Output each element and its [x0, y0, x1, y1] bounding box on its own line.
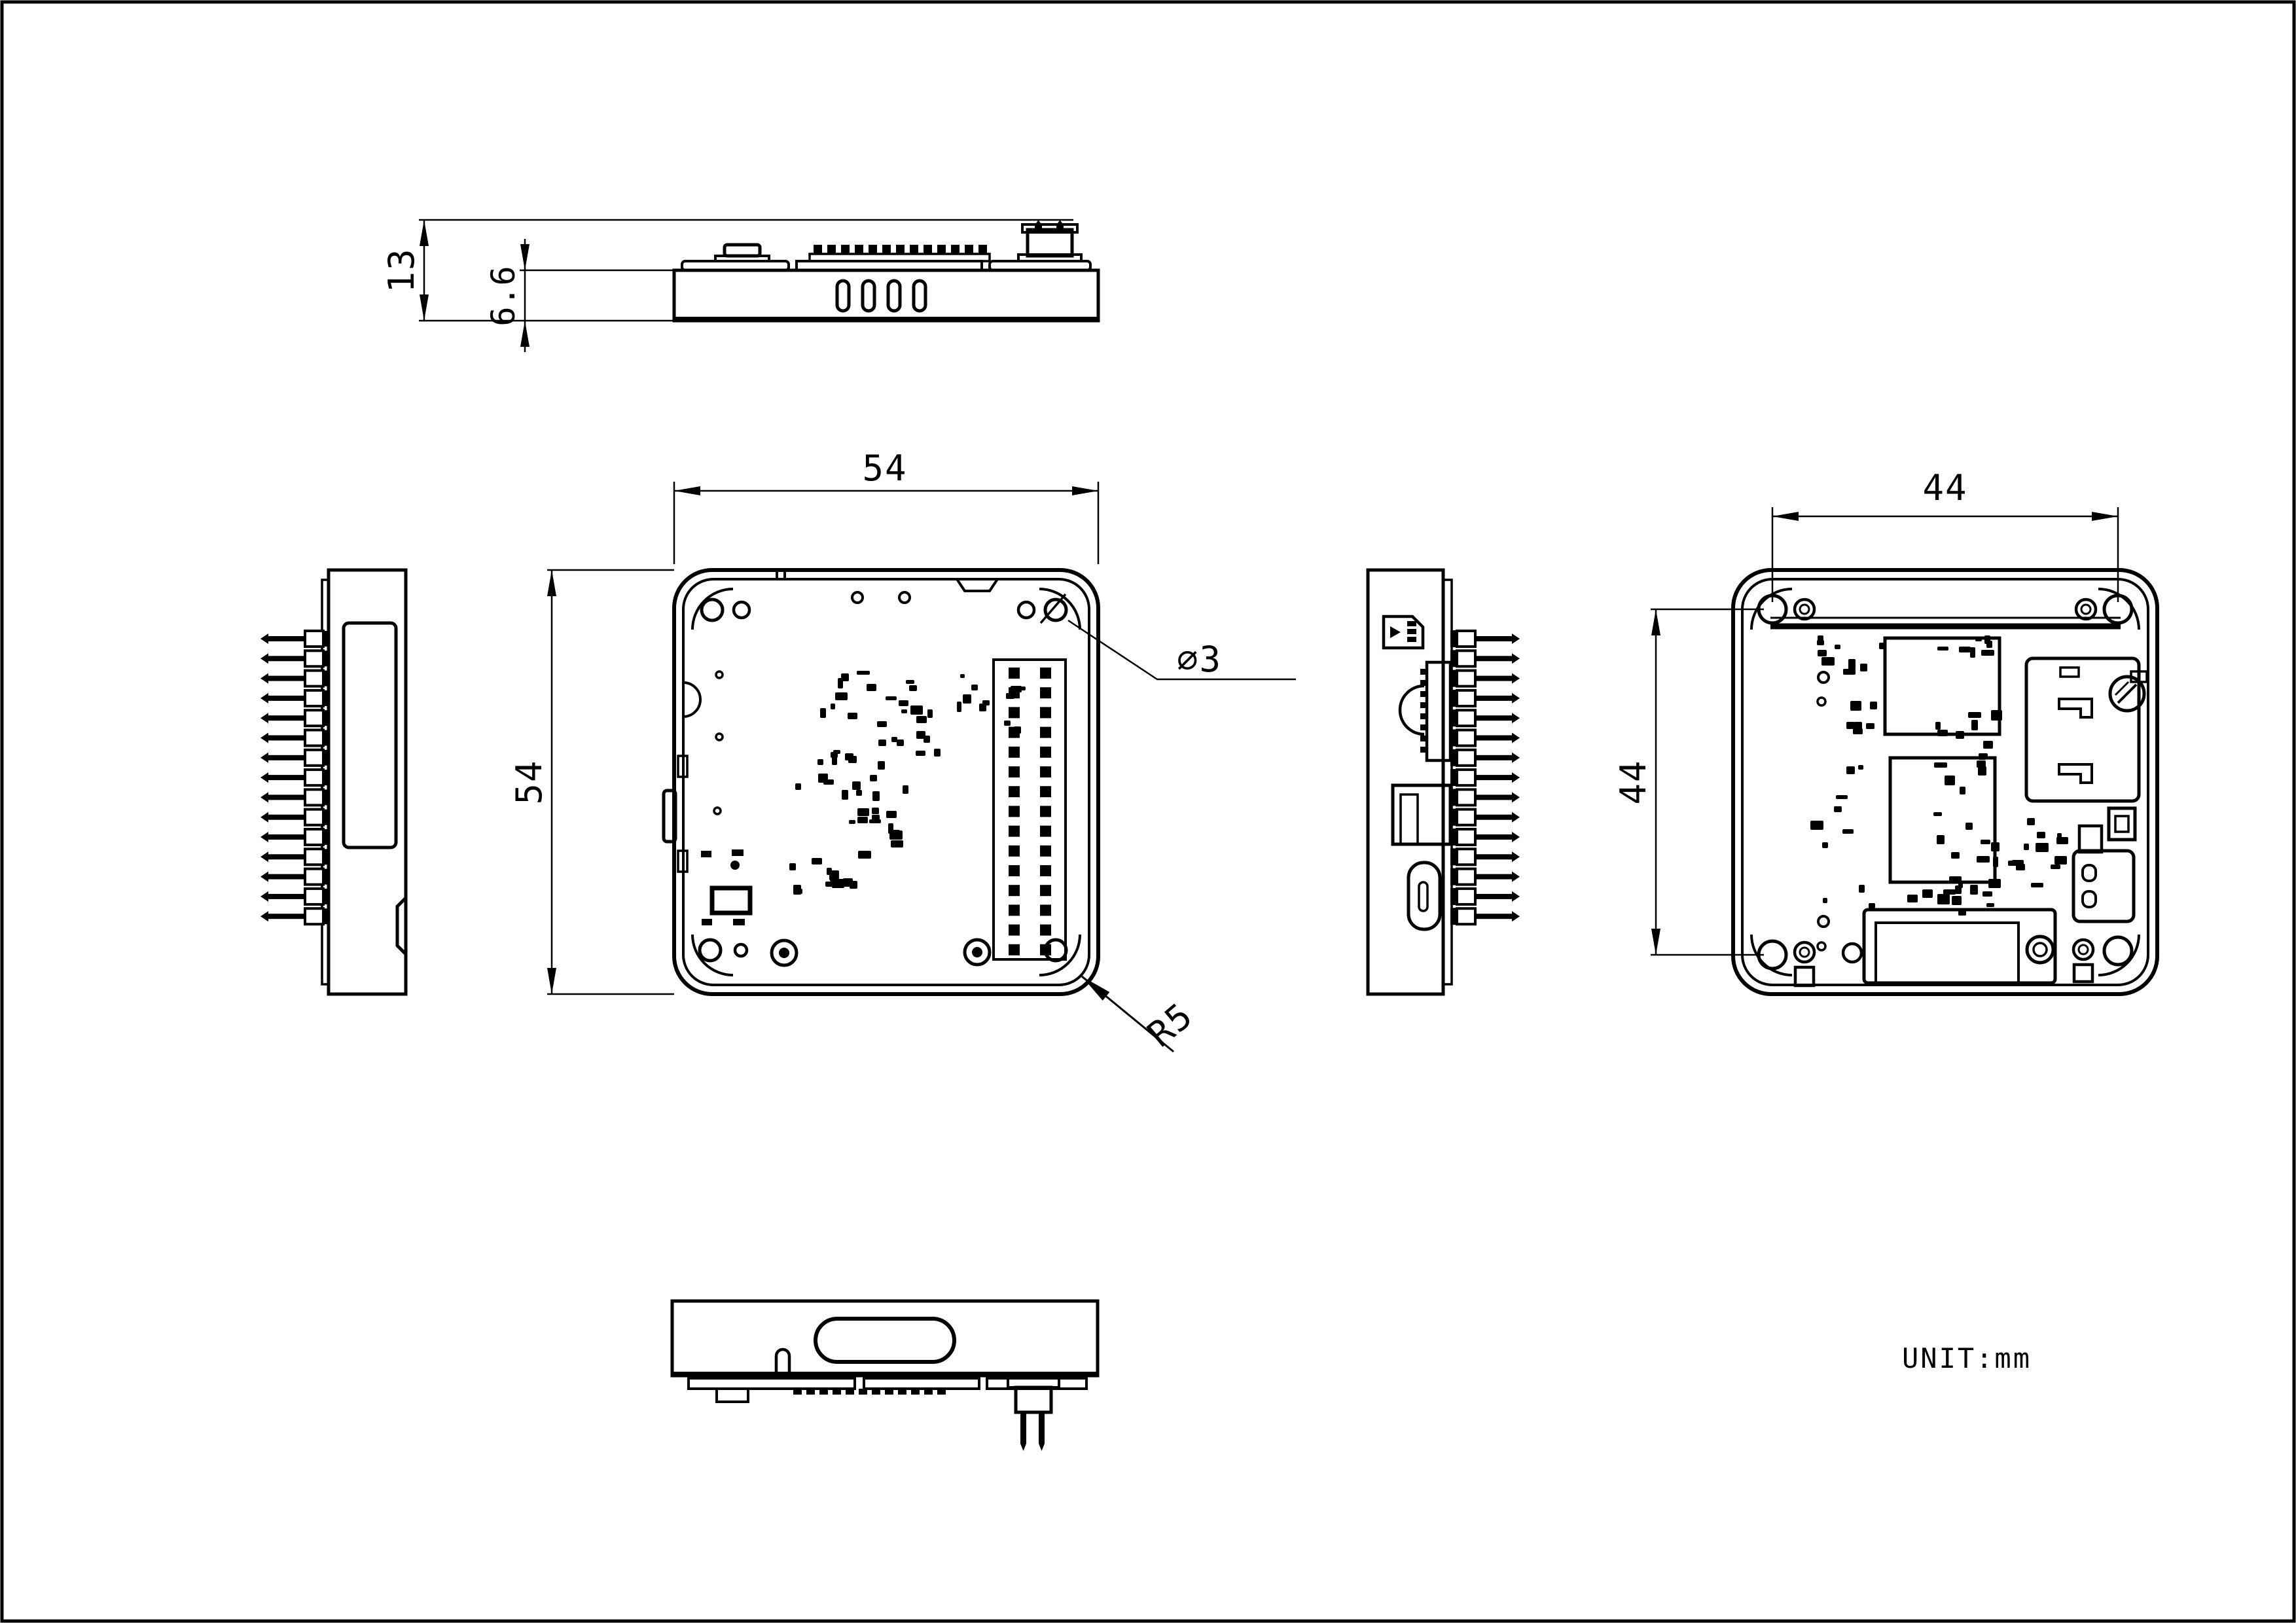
dim-front-height: 54 [509, 570, 674, 994]
view-left-profile [260, 570, 406, 994]
unit-note: UNIT:mm [1902, 1342, 2032, 1374]
button-profile [715, 245, 769, 261]
usb-c-bottom [2073, 851, 2134, 921]
dim-case-height: 6.6 [484, 239, 682, 352]
antenna-connector-profile [1018, 220, 1081, 261]
vent-slots [837, 281, 925, 311]
pin-header-right [1450, 630, 1520, 925]
corner-mounts [1759, 596, 2132, 986]
ic-chip-2 [1890, 758, 1995, 882]
mount-hole [702, 599, 723, 620]
header-pins-profile [814, 245, 987, 254]
smd-pads-bottom [1810, 635, 2068, 916]
plated-hole [772, 940, 1066, 965]
usb-c-profile [1408, 863, 1440, 929]
dim-13-label: 13 [381, 247, 422, 293]
hole-diameter-label: ∅3 [1177, 639, 1222, 680]
page-border [2, 2, 2294, 1621]
view-bottom-open: 44 44 [1613, 467, 2157, 994]
annotation-hole-diameter: ∅3 [1041, 594, 1296, 680]
view-right-profile [1368, 570, 1520, 994]
header-socket-outline [994, 660, 1066, 959]
dim-6-6-label: 6.6 [484, 265, 522, 326]
smd-component-outline [701, 849, 750, 925]
qfn-ic [2079, 826, 2102, 852]
dim-hole-spacing-h: 44 [1772, 467, 2118, 602]
pin-header-left [260, 631, 327, 924]
antenna-connector-bottom [2110, 671, 2147, 711]
engineering-drawing: 13 6.6 [0, 0, 2296, 1623]
dim-front-width: 54 [674, 448, 1098, 564]
mount-hole-annotated [1045, 599, 1066, 620]
sd-card-socket [2026, 658, 2139, 801]
dim-54h-label: 54 [509, 759, 550, 804]
dim-44h-label: 44 [1922, 467, 1967, 508]
button-nub [776, 1349, 789, 1374]
annotation-corner-radius: R5 [1082, 976, 1201, 1055]
bottom-slot [816, 1319, 954, 1362]
view-front: 54 54 ∅3 R5 [509, 448, 1296, 1055]
view-top-profile: 13 6.6 [381, 220, 1098, 352]
view-bottom-profile [672, 1301, 1098, 1451]
corner-radius-label: R5 [1139, 995, 1200, 1056]
microsd-icon [1384, 616, 1423, 648]
button-bottom [2109, 808, 2135, 840]
dim-44v-label: 44 [1613, 759, 1654, 804]
dim-54w-label: 54 [862, 448, 907, 489]
header-pads-grid [1009, 668, 1051, 955]
smd-pads [789, 671, 1026, 895]
